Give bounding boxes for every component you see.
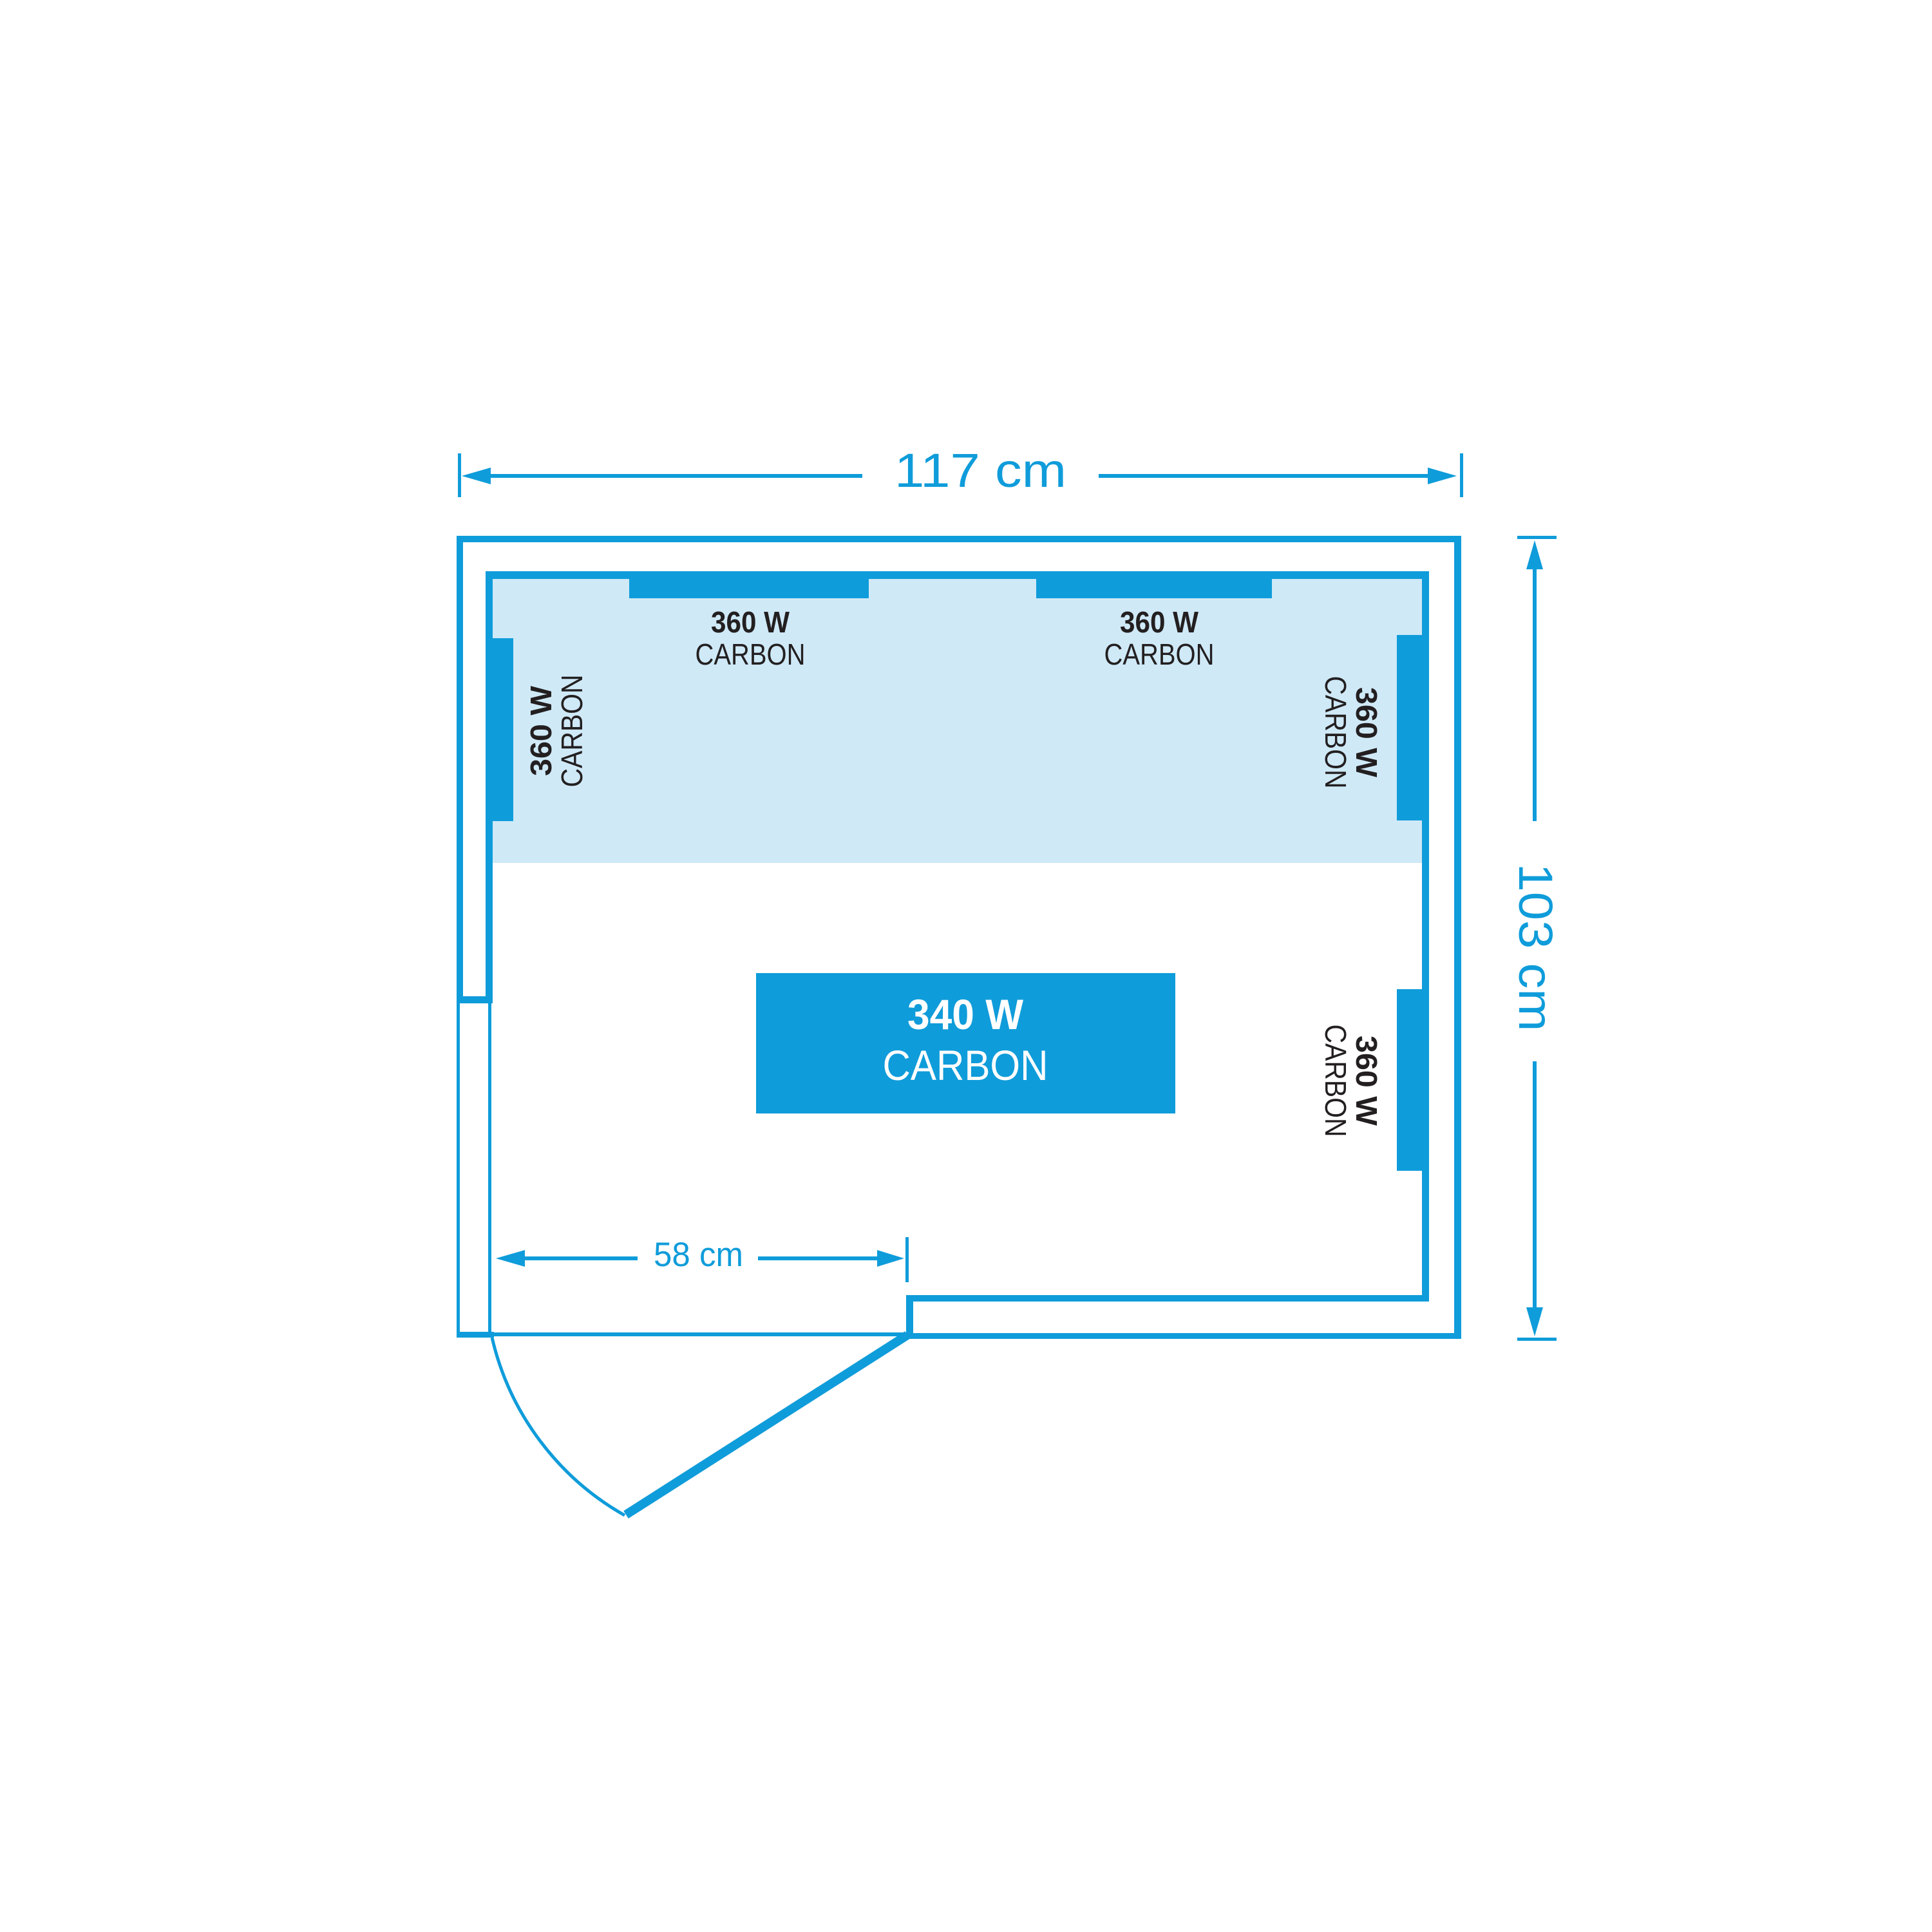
svg-text:CARBON: CARBON [555, 675, 589, 788]
svg-text:360 W: 360 W [524, 685, 558, 776]
svg-text:CARBON: CARBON [1104, 638, 1215, 671]
svg-text:58 cm: 58 cm [654, 1236, 743, 1274]
svg-text:CARBON: CARBON [883, 1041, 1048, 1089]
svg-text:360 W: 360 W [1350, 687, 1383, 778]
svg-text:360 W: 360 W [1350, 1036, 1383, 1126]
svg-text:CARBON: CARBON [696, 638, 806, 671]
svg-text:103 cm: 103 cm [1509, 864, 1562, 1032]
svg-text:117 cm: 117 cm [895, 444, 1066, 497]
svg-text:CARBON: CARBON [1319, 676, 1352, 789]
svg-text:340 W: 340 W [907, 990, 1024, 1038]
svg-text:360 W: 360 W [711, 605, 790, 639]
svg-text:360 W: 360 W [1120, 605, 1199, 639]
svg-text:CARBON: CARBON [1319, 1025, 1352, 1137]
